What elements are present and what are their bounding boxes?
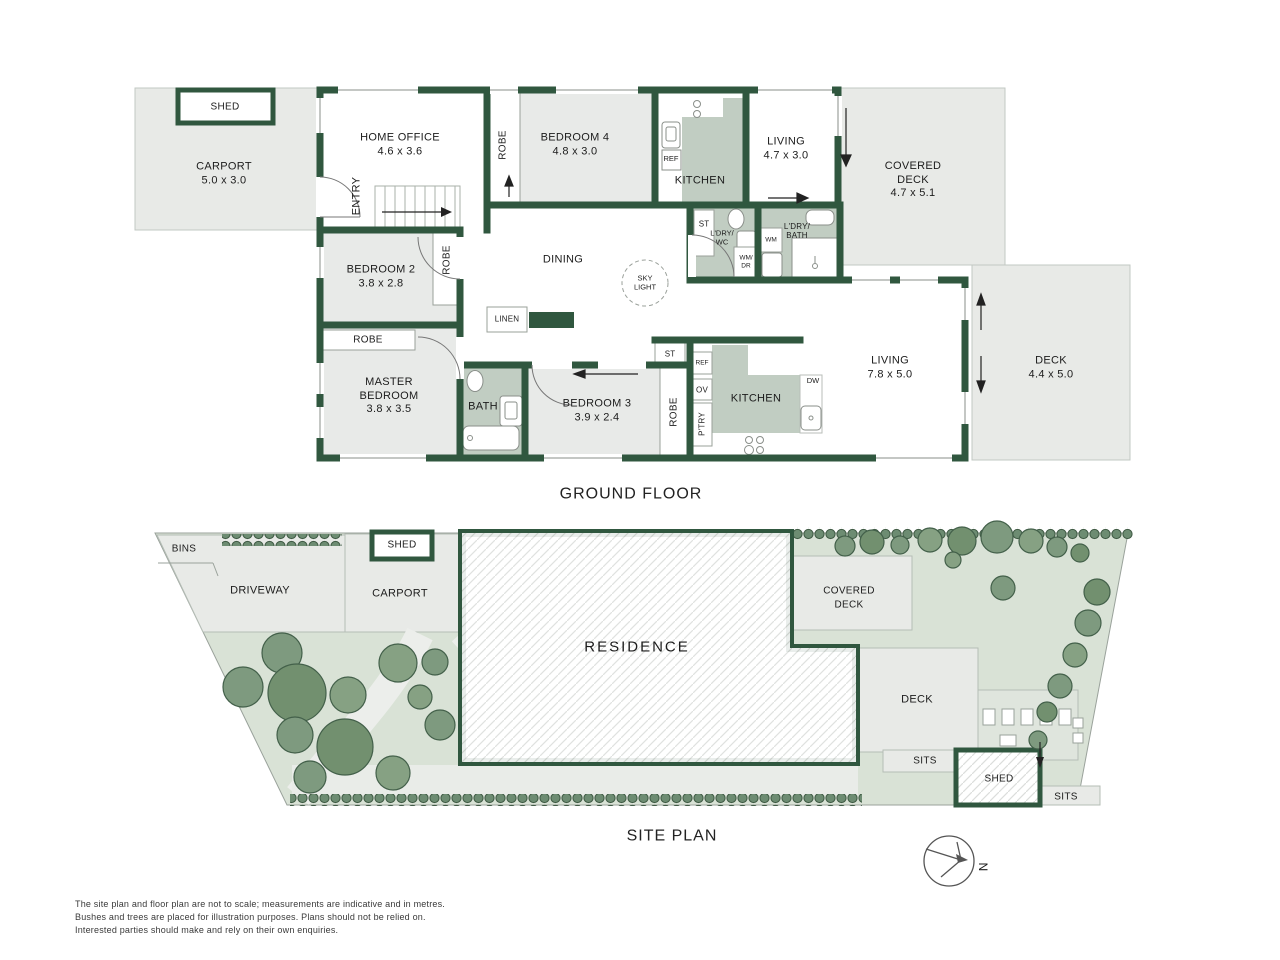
driveway-label: DRIVEWAY [230, 584, 290, 598]
carport-sp-label: CARPORT [372, 587, 428, 601]
north-compass [924, 836, 974, 886]
disclaimer-line-2: Bushes and trees are placed for illustra… [75, 911, 426, 924]
st-kitchen-label: ST [665, 350, 676, 359]
deck-sp-label: DECK [901, 693, 933, 707]
covered-deck-sp-label: COVEREDDECK [823, 585, 875, 612]
ground-floor-title: GROUND FLOOR [560, 487, 703, 501]
north-label: N [975, 863, 989, 872]
site-plan [155, 521, 1133, 806]
entry-label: ENTRY [350, 177, 364, 216]
dining-label: DINING [543, 253, 583, 267]
ov-label: OV [696, 386, 708, 395]
linen-label: LINEN [495, 315, 520, 324]
bins-label: BINS [172, 542, 197, 556]
ptry-label: P'TRY [698, 412, 707, 436]
wm-dr-label: WM/DR [739, 255, 752, 270]
sits-right-label: SITS [1054, 790, 1077, 804]
shed-front-label: SHED [388, 538, 417, 552]
living-top-label: LIVING4.7 x 3.0 [764, 136, 809, 163]
living-main-label: LIVING7.8 x 5.0 [868, 355, 913, 382]
ref-top-label: REF [664, 155, 679, 164]
ldry-wc-label: L'DRY/WC [710, 230, 733, 247]
residence-label: RESIDENCE [584, 640, 690, 654]
bedroom2-label: BEDROOM 23.8 x 2.8 [347, 264, 416, 291]
shed-gf-label: SHED [211, 100, 240, 114]
ref-bottom-label: REF [696, 359, 709, 367]
wm-label: WM [765, 236, 777, 244]
shed-rear-label: SHED [985, 772, 1014, 786]
site-plan-title: SITE PLAN [627, 829, 718, 843]
robe-master-label: ROBE [353, 333, 383, 347]
robe-bed3-label: ROBE [667, 397, 681, 427]
robe-bed4-label: ROBE [496, 130, 510, 160]
carport-gf-label: CARPORT5.0 x 3.0 [196, 161, 252, 188]
plan-graphics [0, 0, 1280, 960]
disclaimer-line-1: The site plan and floor plan are not to … [75, 898, 445, 911]
floorplan-page: SHED CARPORT5.0 x 3.0 HOME OFFICE4.6 x 3… [0, 0, 1280, 960]
bedroom4-label: BEDROOM 44.8 x 3.0 [541, 132, 610, 159]
robe-bed2-label: ROBE [440, 245, 454, 275]
dw-label: DW [807, 377, 820, 386]
kitchen-bottom-label: KITCHEN [731, 392, 781, 406]
skylight-label: SKYLIGHT [634, 275, 656, 292]
disclaimer-line-3: Interested parties should make and rely … [75, 924, 338, 937]
ldry-bath-label: L'DRY/BATH [784, 222, 810, 240]
kitchen-top-label: KITCHEN [675, 174, 725, 188]
bedroom3-label: BEDROOM 33.9 x 2.4 [563, 398, 632, 425]
bath-label: BATH [468, 400, 498, 414]
home-office-label: HOME OFFICE4.6 x 3.6 [360, 132, 440, 159]
ground-floor-plan [135, 86, 1130, 462]
master-bedroom-label: MASTERBEDROOM3.8 x 3.5 [360, 376, 419, 417]
covered-deck-gf-label: COVEREDDECK4.7 x 5.1 [885, 160, 942, 201]
sits-left-label: SITS [913, 754, 936, 768]
st-laundry-label: ST [699, 220, 710, 229]
deck-gf-label: DECK4.4 x 5.0 [1029, 355, 1074, 382]
